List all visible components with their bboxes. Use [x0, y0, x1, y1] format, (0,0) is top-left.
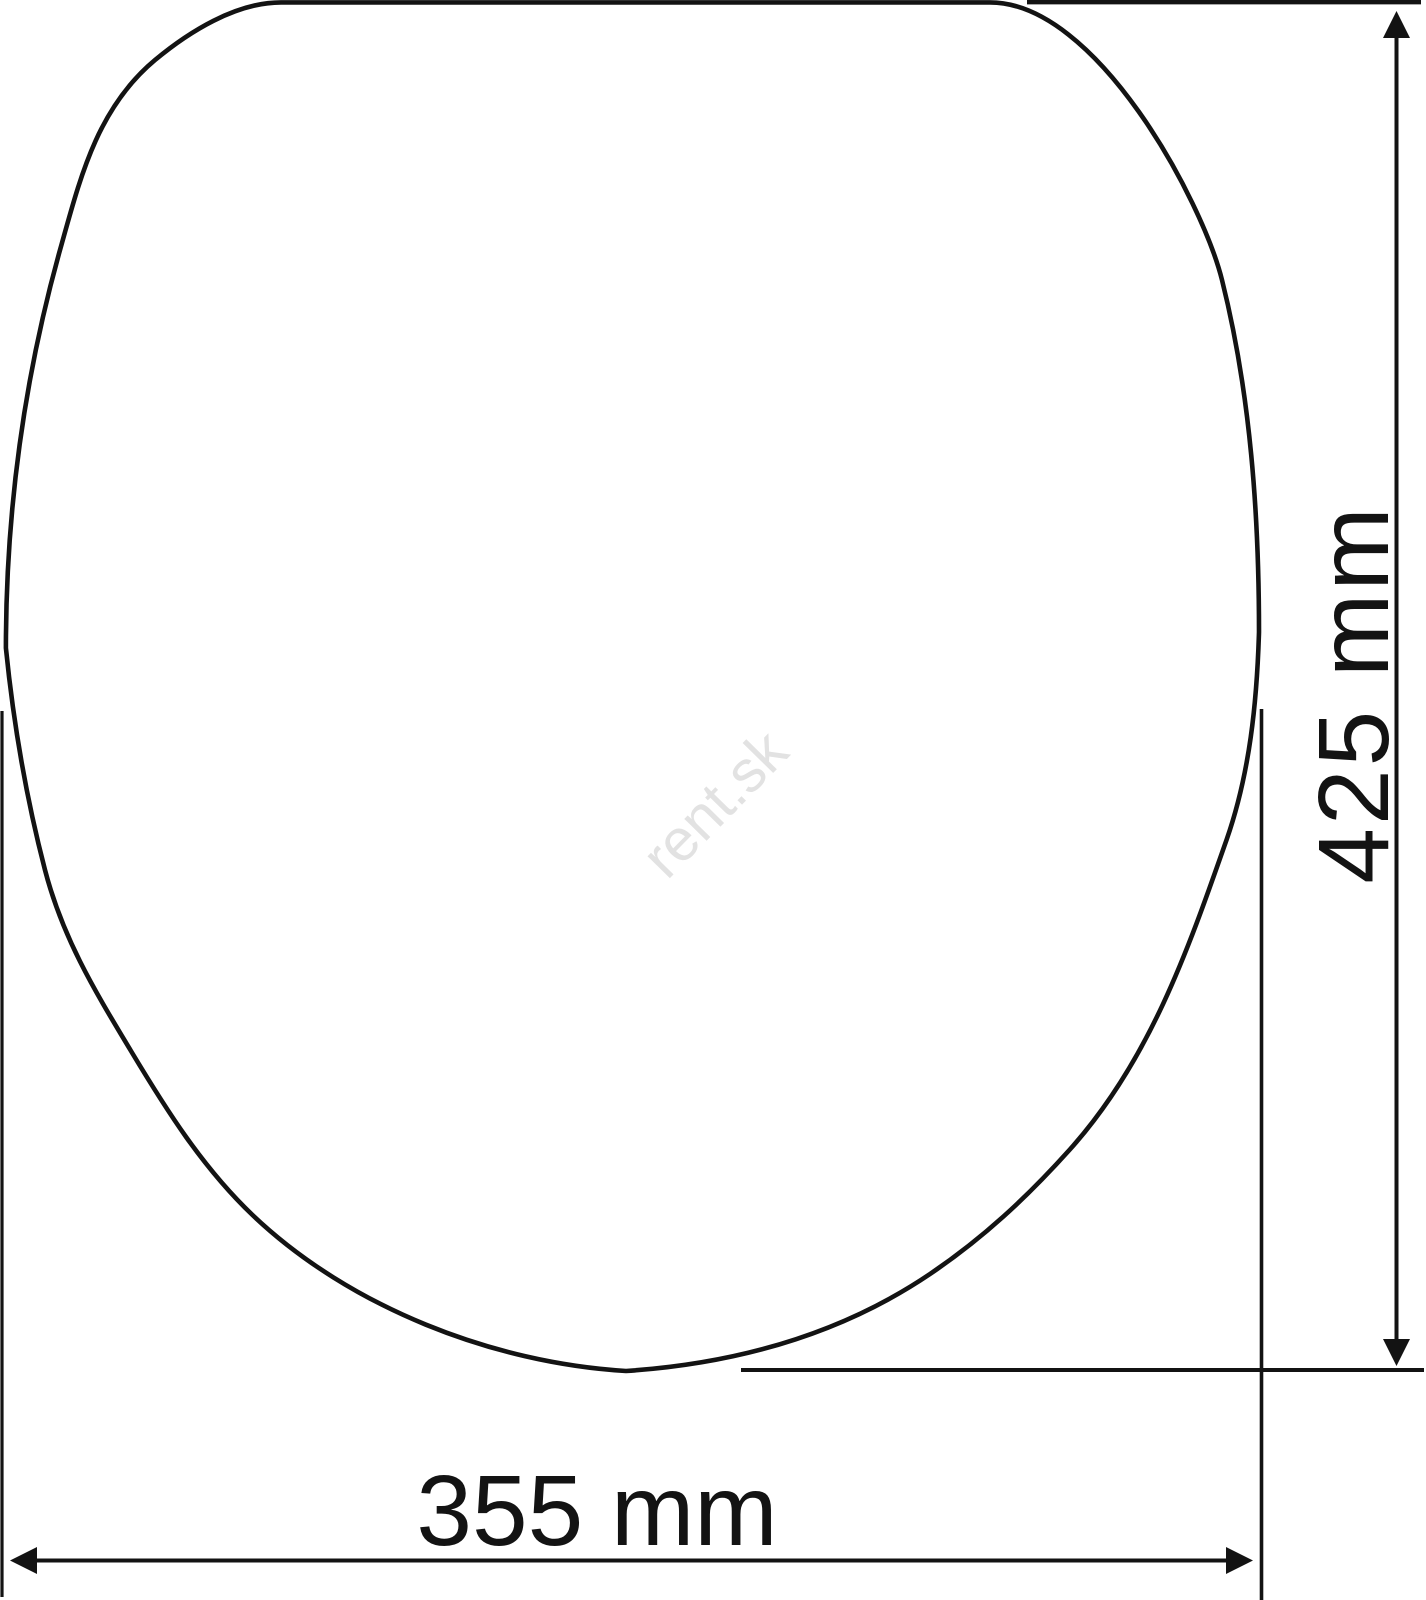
svg-text:rent.sk: rent.sk: [629, 717, 801, 890]
svg-text:425 mm: 425 mm: [1298, 504, 1410, 883]
svg-text:355 mm: 355 mm: [416, 1455, 777, 1567]
